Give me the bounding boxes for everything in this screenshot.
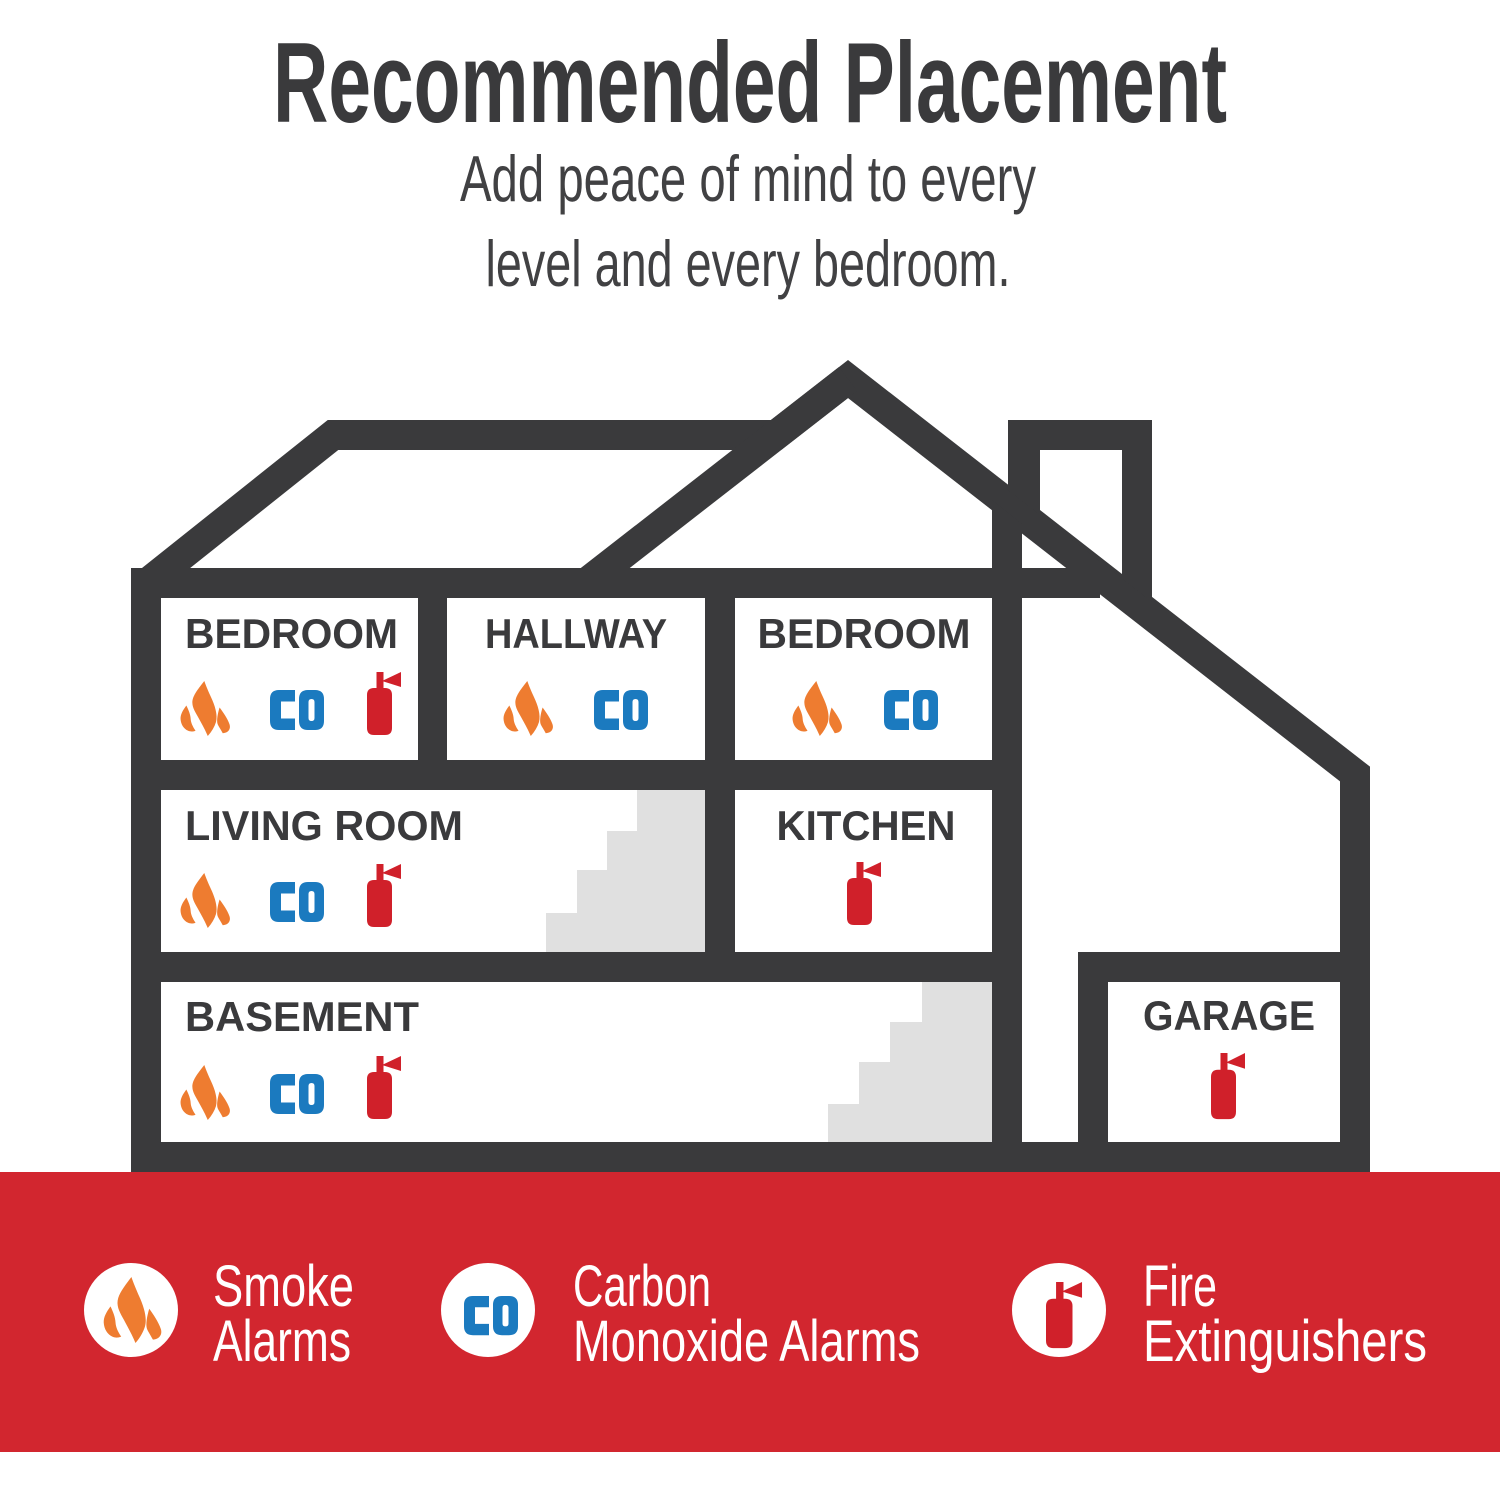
svg-text:HALLWAY: HALLWAY [485,610,667,657]
svg-text:BEDROOM: BEDROOM [758,610,971,657]
svg-text:Extinguishers: Extinguishers [1143,1309,1427,1374]
svg-text:BEDROOM: BEDROOM [185,610,398,657]
svg-text:Recommended Placement: Recommended Placement [273,20,1227,147]
svg-text:level and every bedroom.: level and every bedroom. [486,227,1011,300]
svg-text:Add peace of mind to every: Add peace of mind to every [460,142,1036,215]
svg-text:Monoxide Alarms: Monoxide Alarms [573,1309,920,1374]
svg-text:GARAGE: GARAGE [1143,992,1315,1039]
svg-text:BASEMENT: BASEMENT [185,993,419,1040]
svg-text:Alarms: Alarms [213,1309,351,1374]
svg-text:LIVING ROOM: LIVING ROOM [185,802,463,849]
svg-text:KITCHEN: KITCHEN [777,802,956,849]
